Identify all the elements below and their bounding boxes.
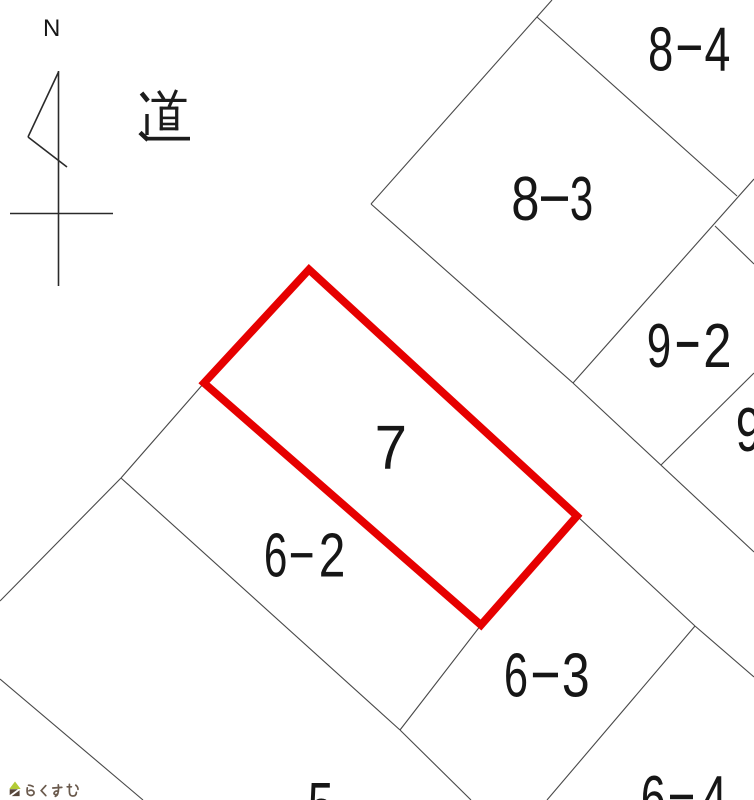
svg-text:N: N xyxy=(43,15,60,42)
svg-text:3: 3 xyxy=(562,642,590,711)
svg-text:5: 5 xyxy=(308,771,334,800)
svg-text:3: 3 xyxy=(570,165,593,234)
svg-text:8: 8 xyxy=(511,165,539,234)
svg-text:7: 7 xyxy=(375,414,407,483)
svg-text:8: 8 xyxy=(648,15,673,84)
svg-text:4: 4 xyxy=(701,764,727,800)
svg-text:4: 4 xyxy=(705,15,731,84)
svg-text:6: 6 xyxy=(504,642,528,711)
svg-text:6: 6 xyxy=(641,764,666,800)
svg-text:2: 2 xyxy=(703,312,731,381)
svg-text:6: 6 xyxy=(264,521,288,590)
svg-text:9: 9 xyxy=(647,312,672,381)
svg-text:9: 9 xyxy=(736,396,754,465)
svg-text:2: 2 xyxy=(319,521,346,590)
